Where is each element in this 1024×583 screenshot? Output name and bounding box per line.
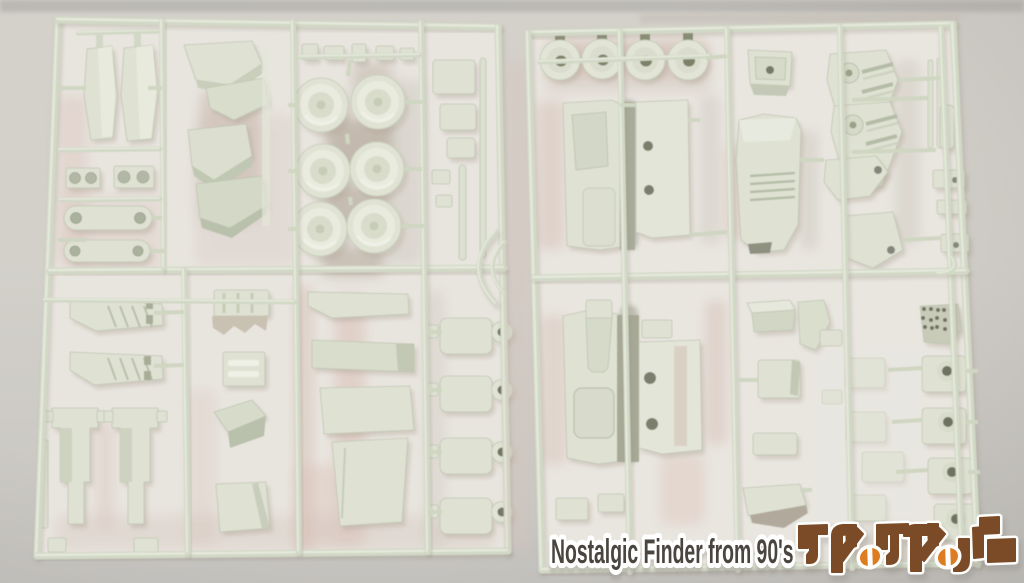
svg-text:Nostalgic Finder from 90's: Nostalgic Finder from 90's — [551, 532, 793, 570]
